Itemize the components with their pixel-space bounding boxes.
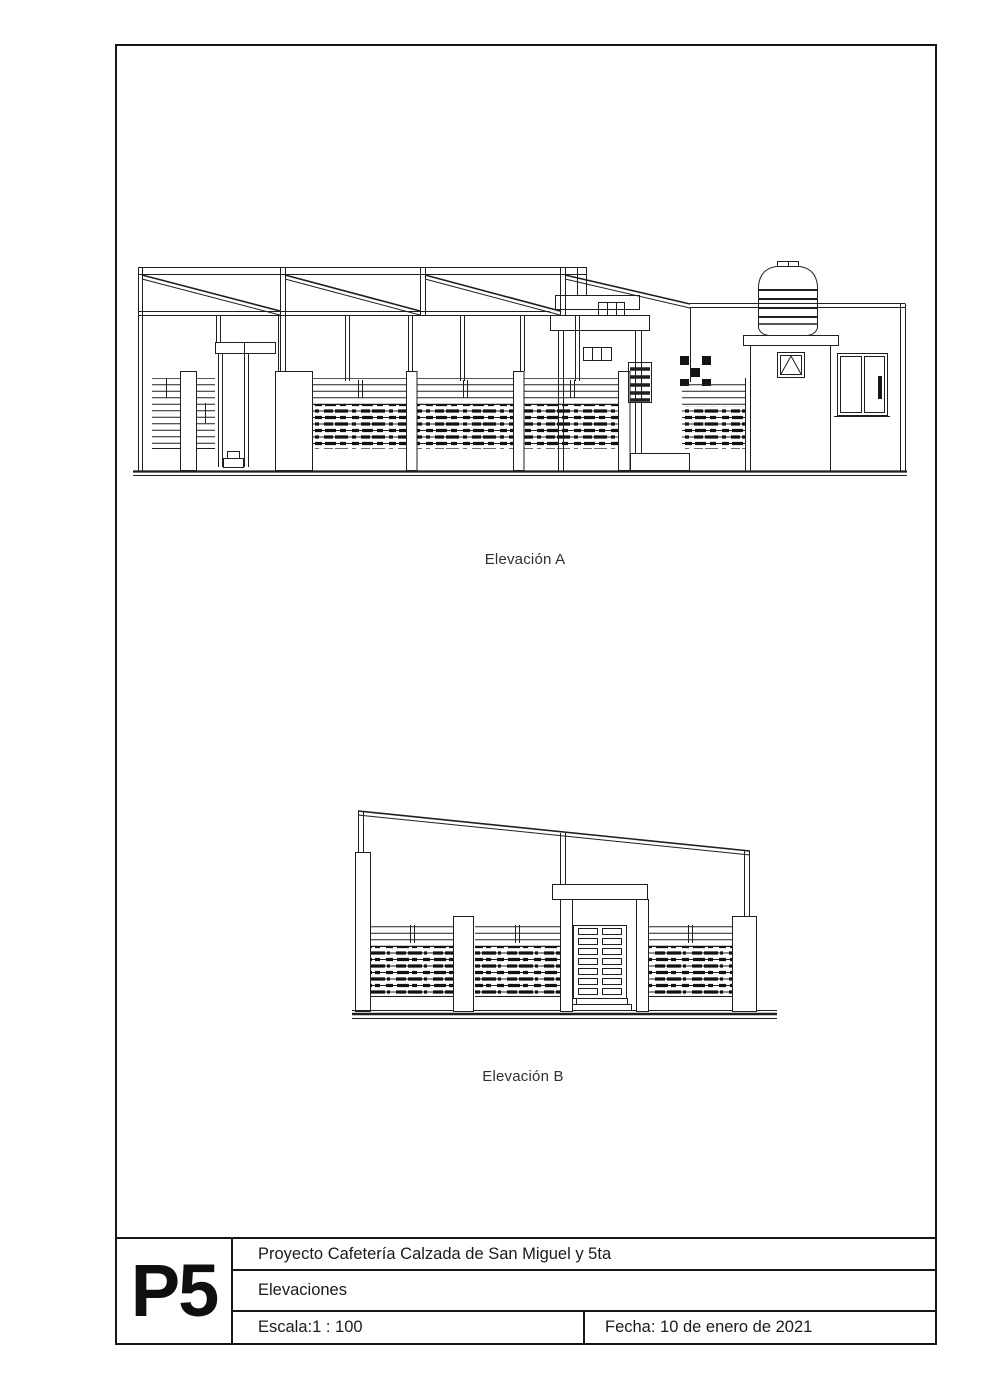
entry-portal: [553, 885, 649, 1012]
double-window: [834, 354, 890, 417]
side-louver-panel: [682, 307, 746, 471]
sheet-title: Elevaciones: [233, 1281, 347, 1300]
drawing-sheet: { "page": { "background": "#ffffff", "li…: [0, 0, 982, 1392]
sheet-number: P5: [131, 1254, 218, 1328]
elevation-a-svg: [130, 258, 910, 488]
ground-line: [133, 472, 907, 476]
date-value: Fecha: 10 de enero de 2021: [585, 1318, 812, 1337]
roof-beam: [358, 811, 750, 917]
scale-date-row: Escala:1 : 100 Fecha: 10 de enero de 202…: [233, 1312, 935, 1343]
gate-slats: [579, 929, 622, 995]
project-row: Proyecto Cafetería Calzada de San Miguel…: [233, 1239, 935, 1271]
water-tank: [759, 262, 818, 336]
scale-value: Escala:1 : 100: [233, 1318, 363, 1337]
title-block-rows: Proyecto Cafetería Calzada de San Miguel…: [233, 1239, 935, 1343]
sheet-title-row: Elevaciones: [233, 1271, 935, 1312]
elevation-b-label: Elevación B: [405, 1068, 641, 1085]
vent-blocks: [680, 356, 711, 386]
project-name: Proyecto Cafetería Calzada de San Miguel…: [233, 1245, 611, 1264]
elevation-b-drawing: [350, 800, 780, 1025]
sheet-number-cell: P5: [117, 1239, 233, 1343]
elevation-a-drawing: [130, 258, 910, 488]
date-cell: Fecha: 10 de enero de 2021: [585, 1312, 935, 1343]
left-wall: [356, 853, 371, 1012]
sheet-border: [115, 44, 937, 1345]
scale-cell: Escala:1 : 100: [233, 1312, 585, 1343]
title-block: P5 Proyecto Cafetería Calzada de San Mig…: [115, 1237, 937, 1345]
elevation-a-label: Elevación A: [407, 551, 643, 568]
awning-window: [778, 353, 805, 378]
elevation-b-svg: [350, 800, 780, 1025]
left-portal: [216, 343, 276, 468]
